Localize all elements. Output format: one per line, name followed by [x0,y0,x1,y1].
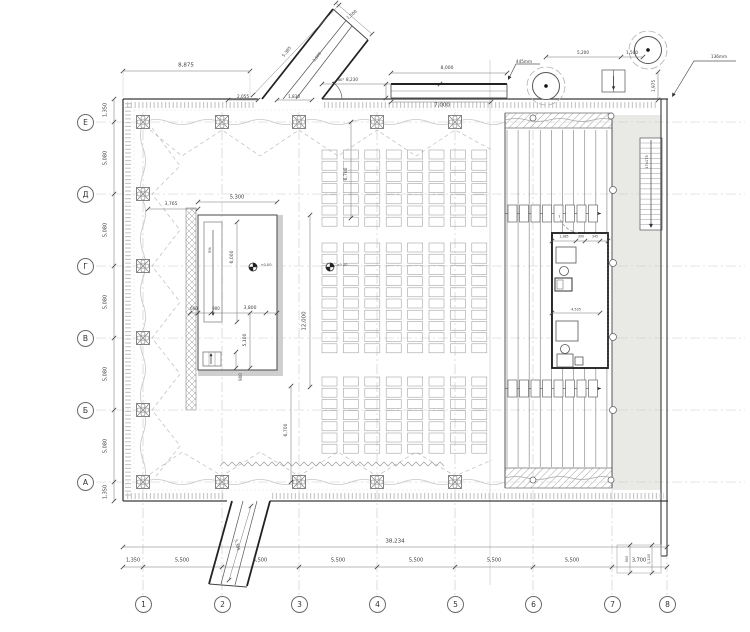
dim-label: 6,700 [285,424,290,437]
dim-label: 60° [338,78,345,82]
grid-col-bubble: 5 [447,596,464,613]
dim-label: 5,500 [565,559,579,564]
dim-label: 12,000 [302,311,308,330]
dim-label: 3,765 [165,203,178,208]
dim-label: 5,300 [230,196,244,201]
dim-label: 2,055 [237,95,249,99]
dim-label: 300 [578,235,584,238]
grid-row-bubble: Е [77,114,94,131]
dim-label: 1,350 [104,103,109,117]
dim-label: 1,975 [652,80,656,92]
grid-row-bubble: Г [77,258,94,275]
dim-label: 5,500 [331,559,345,564]
grid-row-bubble: А [77,474,94,491]
dim-label: 5,100 [244,334,249,347]
grid-col-bubble: 7 [604,596,621,613]
dim-label: 5,080 [104,295,109,309]
dim-label: 4,535 [571,308,581,311]
grid-col-bubble: 3 [291,596,308,613]
grid-col-bubble: 4 [369,596,386,613]
dim-label: 7,000 [434,103,450,109]
dim-label: 8,000 [441,67,454,72]
grid-row-bubble: Д [77,186,94,203]
dim-label: 600 [190,307,198,311]
grid-col-bubble: 8 [659,596,676,613]
dim-label: +0.00 [260,264,271,268]
dim-label: 5% [208,247,212,253]
dim-label: 1,500 [626,51,638,55]
dim-label: 5,500 [253,559,267,564]
dim-label: ±0.00 [336,264,347,268]
grid-col-bubble: 1 [135,596,152,613]
seating-area [322,150,487,453]
dim-label: 3,800 [244,307,257,312]
dim-label: 900 [212,307,220,311]
dim-label: 5,080 [104,223,109,237]
dim-label: 17x175 [646,155,650,169]
dim-label: 5,080 [104,151,109,165]
dim-label: 900 [239,373,243,381]
dim-label: 5,080 [104,439,109,453]
dim-label: 345 [592,235,598,238]
grid-col-bubble: 2 [214,596,231,613]
dim-label: 136mm [711,55,727,59]
dim-label: 1,350 [126,559,140,564]
dim-label: 445mm [516,60,532,64]
dim-label: 1,830 [288,95,300,99]
dim-label: 1,350 [104,485,109,499]
dim-label: 1,100 [648,554,652,564]
dim-label: 3,700 [632,559,646,564]
dim-label: 900 [626,556,630,563]
floor-plan: 1,3505,0805,0805,0805,0805,0801,3501,350… [0,0,750,632]
dim-label: 1,385 [559,235,568,238]
dim-label: 8,230 [346,78,358,82]
dim-label: 38,234 [385,539,404,545]
grid-row-bubble: Б [77,402,94,419]
dim-label: 5,500 [487,559,501,564]
dim-label: 5,200 [577,51,589,55]
dim-label: 5,500 [175,559,189,564]
dim-label: 5,080 [104,367,109,381]
plan-linework [0,0,750,632]
dim-label: 5,500 [409,559,423,564]
grid-row-bubble: В [77,330,94,347]
dim-label: 8,875 [178,63,194,69]
dim-label: 6,700 [345,168,350,181]
dim-label: 6,000 [231,251,236,264]
grid-col-bubble: 6 [525,596,542,613]
